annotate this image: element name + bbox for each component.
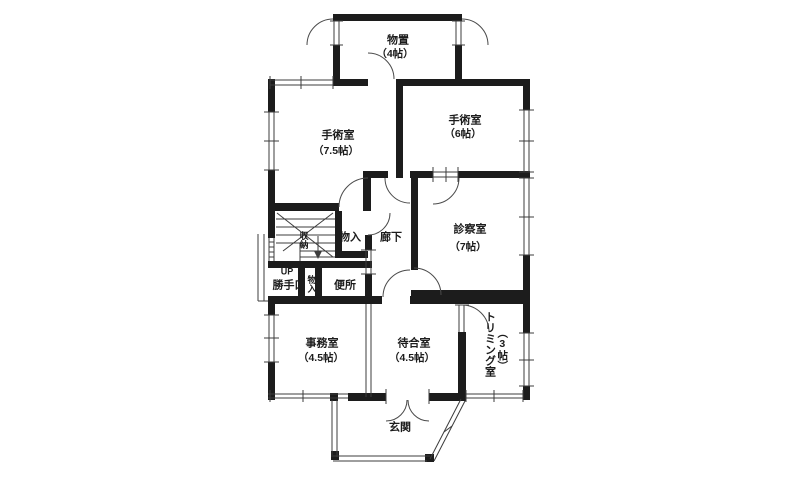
- door-swing-arc: [383, 270, 410, 297]
- door-swing-arc: [386, 400, 407, 421]
- wall-segment: [268, 79, 275, 112]
- room-size-exam-room: （7帖）: [449, 242, 486, 253]
- wall-segment: [396, 79, 530, 86]
- room-size-operating-room-large: （7.5帖）: [313, 146, 359, 157]
- wall-segment: [333, 79, 368, 86]
- room-label-waiting-room: 待合室: [398, 339, 431, 350]
- wall-segment: [268, 203, 339, 211]
- wall-segment: [523, 255, 530, 300]
- room-label-operating-room-large: 手術室: [322, 131, 355, 142]
- floor-plan-page: 物置 （4帖） 手術室 （7.5帖） 手術室 （6帖） 診察室 （7帖） 物入 …: [0, 0, 800, 481]
- room-size-trimming-room: （3帖）: [497, 327, 508, 371]
- room-label-toilet: 便所: [334, 281, 356, 292]
- wall-segment: [411, 290, 530, 297]
- room-size-waiting-room: （4.5帖）: [389, 353, 435, 364]
- room-label-closet-center: 物入: [339, 233, 361, 244]
- wall-segment: [455, 45, 462, 79]
- wall-segment: [363, 178, 371, 211]
- wall-segment: [396, 86, 403, 178]
- door-swing-arc: [408, 400, 429, 421]
- wall-segment: [365, 235, 372, 250]
- wall-segment: [268, 304, 275, 315]
- door-swing-arc: [385, 178, 410, 203]
- wall-segment: [410, 296, 530, 304]
- wall-segment: [333, 14, 462, 21]
- door-swing-arc: [462, 19, 488, 45]
- wall-segment: [333, 45, 340, 79]
- room-label-hallway: 廊下: [380, 233, 402, 244]
- wall-segment: [523, 296, 530, 333]
- wall-segment: [335, 251, 368, 258]
- window-or-detail-line: [434, 401, 465, 461]
- room-label-exam-room: 診察室: [454, 225, 487, 236]
- wall-segment: [523, 79, 530, 110]
- wall-segment: [411, 178, 418, 270]
- wall-segment: [410, 171, 433, 178]
- room-label-stair-storage: 収納: [299, 231, 308, 249]
- room-size-operating-room-small: （6帖）: [444, 129, 481, 140]
- room-label-office: 事務室: [306, 339, 339, 350]
- room-label-entrance: 玄関: [389, 423, 411, 434]
- room-label-trimming-room: トリミング室: [484, 311, 495, 377]
- stairs-up-label: UP: [281, 268, 294, 277]
- wall-segment: [348, 393, 386, 401]
- room-label-storage: 物置: [387, 36, 409, 47]
- wall-segment: [268, 211, 275, 238]
- wall-segment: [523, 386, 530, 400]
- room-label-closet-small: 物入: [307, 275, 316, 293]
- door-swing-arc: [307, 19, 333, 45]
- room-size-office: （4.5帖）: [298, 353, 344, 364]
- wall-segment: [458, 332, 466, 397]
- room-size-storage: （4帖）: [376, 49, 413, 60]
- stair-direction-arrow: [314, 251, 322, 259]
- room-label-operating-room-small: 手術室: [449, 116, 482, 127]
- wall-segment: [363, 171, 388, 178]
- room-label-back-door: 勝手口: [273, 281, 306, 292]
- window-or-detail-line: [430, 399, 461, 459]
- wall-segment: [268, 296, 382, 304]
